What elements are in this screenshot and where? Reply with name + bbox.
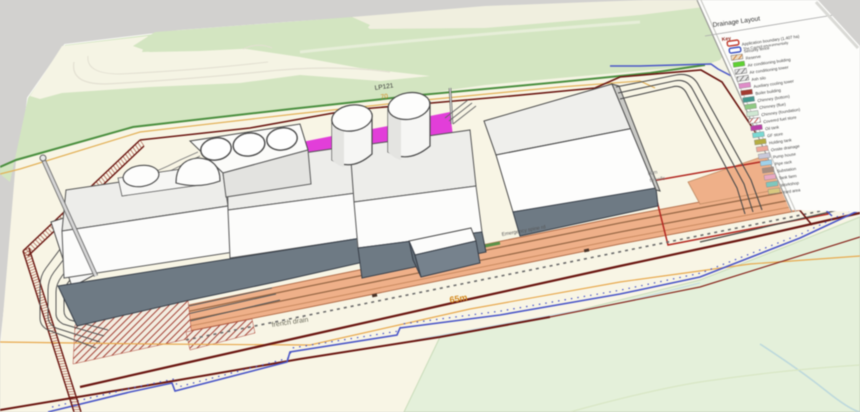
svg-text:70: 70 (380, 93, 389, 101)
